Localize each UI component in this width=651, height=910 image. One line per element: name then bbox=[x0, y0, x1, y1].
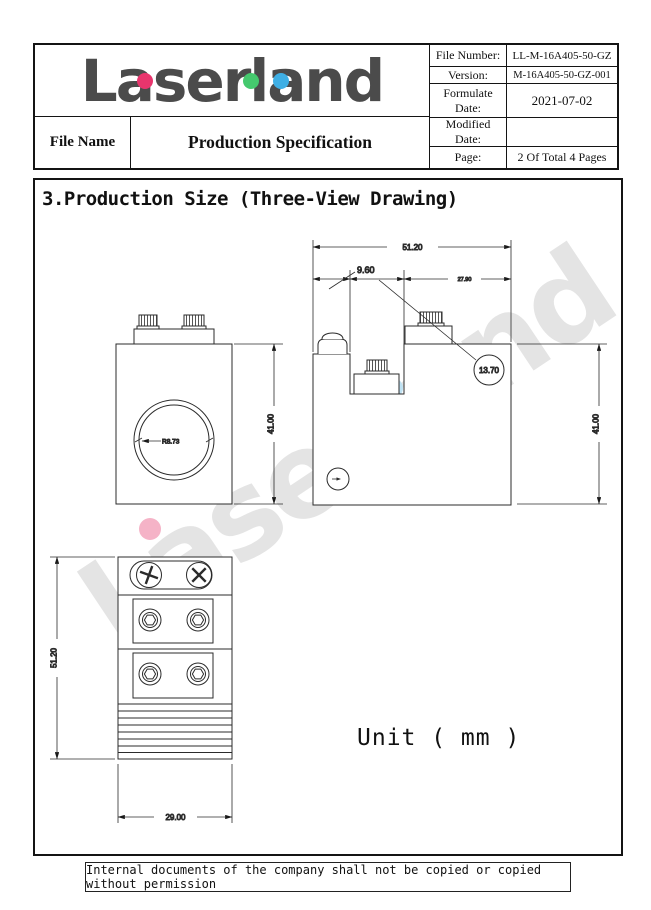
logo-green-dot-icon bbox=[243, 73, 259, 89]
formulate-date-label: Formulate Date: bbox=[430, 84, 507, 117]
front-view: R8.73 41.00 bbox=[116, 315, 283, 504]
dim-side-mid-width: 13.70 bbox=[479, 366, 500, 375]
modified-date-label: Modified Date: bbox=[430, 118, 507, 146]
logo-wordmark: Laserland bbox=[81, 47, 383, 115]
dim-bottom-length: 51.20 bbox=[50, 647, 59, 668]
side-view: 51.20 27.90 9.60 13.70 41.00 bbox=[313, 240, 607, 505]
formulate-date-value: 2021-07-02 bbox=[507, 84, 617, 117]
dim-side-left-offset: 9.60 bbox=[357, 265, 375, 275]
dim-bottom-width: 29.00 bbox=[165, 813, 186, 822]
dim-lens-radius: R8.73 bbox=[162, 439, 180, 446]
field-row-formulate-date: Formulate Date: 2021-07-02 bbox=[430, 84, 617, 118]
logo-cell: Laserland bbox=[35, 45, 429, 117]
header-left-section: Laserland File Name Production Specifica… bbox=[35, 45, 430, 168]
page-value: 2 Of Total 4 Pages bbox=[507, 147, 617, 168]
footer-notice-text: Internal documents of the company shall … bbox=[86, 863, 570, 891]
field-row-version: Version: M-16A405-50-GZ-001 bbox=[430, 67, 617, 84]
bottom-view: 51.20 29.00 bbox=[50, 557, 233, 823]
drawing-area: Laserland 3.Production Size (Three-View … bbox=[33, 178, 623, 856]
unit-label: Unit ( mm ) bbox=[357, 725, 520, 751]
file-number-value: LL-M-16A405-50-GZ bbox=[507, 45, 617, 66]
company-logo: Laserland bbox=[81, 52, 383, 110]
file-number-label: File Number: bbox=[430, 45, 507, 66]
logo-blue-dot-icon bbox=[273, 73, 289, 89]
modified-date-value bbox=[507, 118, 617, 146]
version-value: M-16A405-50-GZ-001 bbox=[507, 67, 617, 83]
dim-side-height: 41.00 bbox=[592, 413, 601, 434]
section-title: 3.Production Size (Three-View Drawing) bbox=[42, 188, 458, 210]
footer-notice-box: Internal documents of the company shall … bbox=[85, 862, 571, 892]
three-view-drawing: R8.73 41.00 bbox=[35, 180, 621, 854]
field-row-file-number: File Number: LL-M-16A405-50-GZ bbox=[430, 45, 617, 67]
header-fields-section: File Number: LL-M-16A405-50-GZ Version: … bbox=[430, 45, 617, 168]
header-table: Laserland File Name Production Specifica… bbox=[33, 43, 619, 170]
logo-pink-dot-icon bbox=[137, 73, 153, 89]
dim-side-right-width: 27.90 bbox=[458, 277, 472, 283]
dim-front-height: 41.00 bbox=[267, 413, 276, 434]
version-label: Version: bbox=[430, 67, 507, 83]
field-row-page: Page: 2 Of Total 4 Pages bbox=[430, 147, 617, 168]
dim-side-total-width: 51.20 bbox=[402, 243, 423, 252]
document-title: Production Specification bbox=[131, 117, 429, 168]
field-row-modified-date: Modified Date: bbox=[430, 118, 617, 147]
file-name-label: File Name bbox=[35, 117, 131, 168]
page-label: Page: bbox=[430, 147, 507, 168]
